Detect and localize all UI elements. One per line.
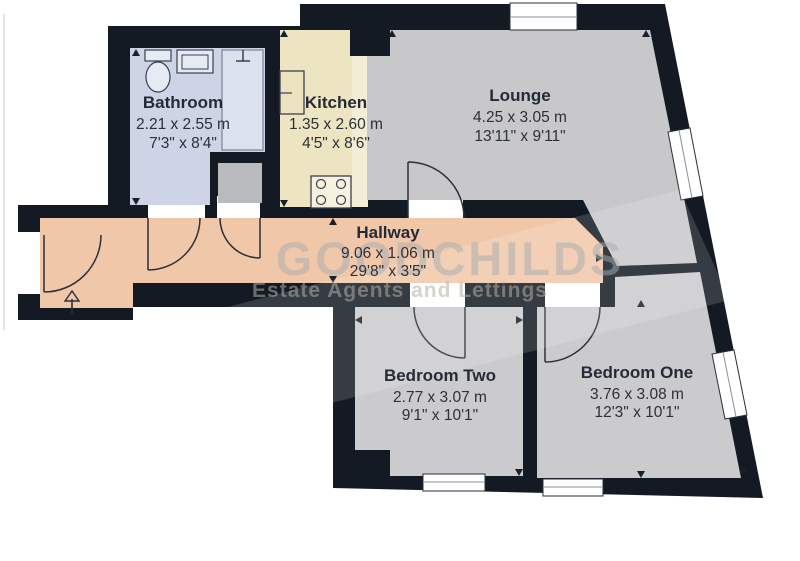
- watermark-text: GOODCHILDS: [276, 232, 625, 285]
- room-cupboard: [218, 163, 262, 203]
- toilet-bowl-icon: [146, 62, 170, 92]
- toilet-icon: [145, 50, 171, 61]
- lounge-imperial: 13'11" x 9'11": [474, 128, 565, 145]
- floor-plan-page: GOODCHILDS Estate Agents and Lettings Ba…: [0, 0, 800, 561]
- lounge-metric: 4.25 x 3.05 m: [473, 109, 567, 126]
- hallway-imperial: 29'8" x 3'5": [350, 263, 426, 280]
- bedroom-two-metric: 2.77 x 3.07 m: [393, 389, 487, 406]
- hallway-label: Hallway: [356, 223, 420, 242]
- bathroom-metric: 2.21 x 2.55 m: [136, 116, 230, 133]
- kitchen-label: Kitchen: [305, 93, 367, 112]
- bathroom-imperial: 7'3" x 8'4": [149, 135, 217, 152]
- bedroom-one-metric: 3.76 x 3.08 m: [590, 386, 684, 403]
- stove-icon: [311, 176, 351, 208]
- kitchen-metric: 1.35 x 2.60 m: [289, 116, 383, 133]
- bathroom-label: Bathroom: [143, 93, 223, 112]
- watermark-tagline: Estate Agents and Lettings: [252, 279, 548, 302]
- bedroom-two-imperial: 9'1" x 10'1": [402, 407, 478, 424]
- floor-plan: GOODCHILDS Estate Agents and Lettings Ba…: [0, 0, 800, 561]
- bedroom-two-label: Bedroom Two: [384, 366, 496, 385]
- lounge-label: Lounge: [489, 86, 550, 105]
- entry-door-opening: [12, 232, 44, 294]
- chimney-block: [350, 26, 390, 56]
- hallway-metric: 9.06 x 1.06 m: [341, 245, 435, 262]
- kitchen-imperial: 4'5" x 8'6": [302, 135, 370, 152]
- shower-enclosure: [222, 50, 263, 150]
- bedroom-one-imperial: 12'3" x 10'1": [594, 404, 679, 421]
- bedroom-one-label: Bedroom One: [581, 363, 693, 382]
